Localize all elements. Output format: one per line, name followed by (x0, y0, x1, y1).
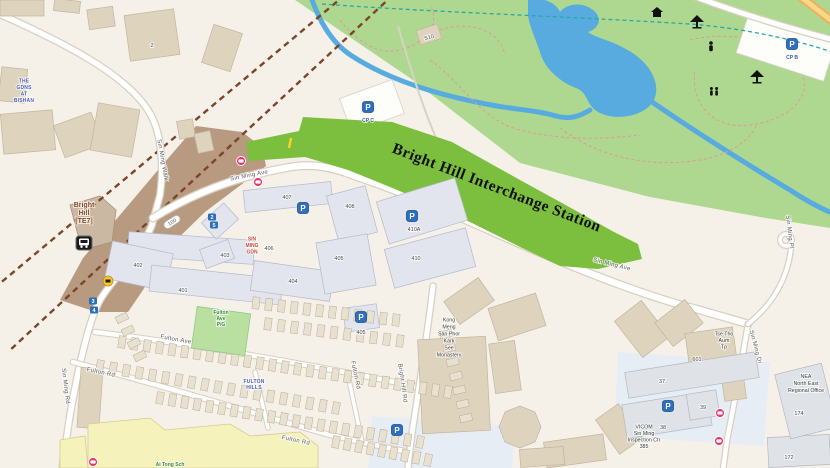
monastery-pagoda (499, 406, 541, 448)
label-blk-406: 406 (264, 246, 273, 252)
svg-text:2: 2 (210, 215, 213, 221)
terrace-house (328, 306, 336, 319)
building (53, 0, 80, 13)
terrace-house (303, 323, 311, 336)
building (0, 0, 44, 16)
building (124, 9, 180, 62)
parking-icon[interactable]: P (787, 39, 798, 50)
bus-stop-icon[interactable] (89, 458, 98, 467)
label-blk-38: 38 (660, 425, 666, 431)
terrace-house (243, 355, 252, 368)
terrace-house (318, 366, 327, 379)
terrace-house (168, 343, 177, 356)
map-viewport[interactable]: PPPPPPP3425100 Sin Ming WalkSin Ming Ave… (0, 0, 830, 468)
terrace-house (277, 300, 285, 313)
terrace-house (277, 319, 285, 332)
bus-stop-icon[interactable] (716, 409, 725, 418)
svg-text:P: P (409, 212, 415, 221)
terrace-house (419, 382, 428, 395)
terrace-house (264, 318, 272, 331)
terrace-house (396, 335, 404, 348)
label-blk-601: 601 (692, 357, 701, 363)
exit-icon[interactable]: 2 (208, 214, 216, 221)
label-blk-404: 404 (288, 279, 297, 285)
terrace-house (293, 362, 302, 375)
terrace-house (306, 364, 315, 377)
terrace-house (256, 357, 265, 370)
building (418, 336, 491, 433)
terrace-house (268, 359, 277, 372)
label-blk-405: 405 (334, 256, 343, 262)
label-blk-410: 410 (411, 256, 420, 262)
label-cp-c: CP C (362, 118, 374, 124)
label-blk-403: 403 (220, 253, 229, 259)
terrace-house (406, 380, 415, 393)
bus-stop-icon[interactable] (237, 157, 246, 166)
parking-icon[interactable]: P (298, 203, 309, 214)
label-blk-402: 402 (133, 263, 142, 269)
bus-stop-icon[interactable] (715, 437, 724, 446)
parking-icon[interactable]: P (407, 211, 418, 222)
label-blk-39: 39 (700, 405, 706, 411)
label-blk-2: 2 (150, 43, 153, 49)
building (90, 103, 140, 158)
svg-text:P: P (365, 103, 371, 112)
svg-text:3: 3 (91, 299, 94, 305)
svg-text:P: P (394, 426, 400, 435)
terrace-house (180, 345, 189, 358)
building (519, 446, 564, 467)
person-icon (709, 41, 713, 51)
terrace-house (379, 312, 387, 325)
exit-icon[interactable]: 3 (89, 298, 97, 305)
svg-text:P: P (789, 40, 795, 49)
terrace-house (366, 311, 374, 324)
terrace-house (369, 331, 377, 344)
exit-icon[interactable]: 5 (210, 222, 218, 229)
label-cp-405: 405 (356, 330, 365, 336)
terrace-house (392, 314, 400, 327)
label-blk-37: 37 (659, 379, 665, 385)
parking-icon[interactable]: P (356, 312, 367, 323)
exit-icon[interactable]: 4 (90, 307, 98, 314)
building (177, 119, 196, 140)
camera-icon[interactable] (103, 276, 113, 286)
terrace-house (281, 361, 290, 374)
label-ai-tong-sch: Ai Tong Sch (156, 462, 185, 468)
label-blk-407: 407 (282, 195, 291, 201)
terrace-house (444, 386, 453, 399)
label-blk-410a: 410A (408, 227, 421, 233)
mrt-station-icon[interactable] (76, 236, 92, 250)
terrace-house (265, 298, 273, 311)
terrace-house (331, 368, 340, 381)
terrace-house (381, 376, 390, 389)
parking-icon[interactable]: P (363, 102, 374, 113)
parking-icon[interactable]: P (392, 425, 403, 436)
svg-text:5: 5 (212, 223, 215, 229)
building (87, 6, 116, 29)
terrace-house (155, 341, 164, 354)
label-blk-408: 408 (345, 204, 354, 210)
parking-icon[interactable]: P (663, 401, 674, 412)
building (0, 110, 55, 154)
terrace-house (431, 384, 440, 397)
terrace-house (118, 336, 127, 349)
terrace-house (303, 303, 311, 316)
terrace-house (315, 304, 323, 317)
terrace-house (290, 301, 298, 314)
svg-text:P: P (665, 402, 671, 411)
svg-text:P: P (300, 204, 306, 213)
terrace-house (341, 307, 349, 320)
label-cp-b: CP B (786, 55, 798, 61)
map-canvas[interactable]: PPPPPPP3425100 Sin Ming WalkSin Ming Ave… (0, 0, 830, 468)
terrace-house (343, 328, 351, 341)
terrace-house (343, 370, 352, 383)
label-blk-174: 174 (794, 411, 803, 417)
terrace-house (383, 333, 391, 346)
terrace-house (330, 326, 338, 339)
terrace-house (368, 374, 377, 387)
building (77, 367, 103, 428)
bus-stop-icon[interactable] (254, 178, 263, 187)
terrace-house (290, 321, 298, 334)
terrace-house (317, 324, 325, 337)
svg-text:P: P (358, 313, 364, 322)
label-fulton-hills: FULTONHILLS (243, 379, 264, 391)
building (316, 234, 376, 294)
label-blk-172: 172 (784, 455, 793, 461)
building (767, 434, 830, 467)
terrace-house (252, 297, 260, 310)
label-blk-401: 401 (178, 288, 187, 294)
